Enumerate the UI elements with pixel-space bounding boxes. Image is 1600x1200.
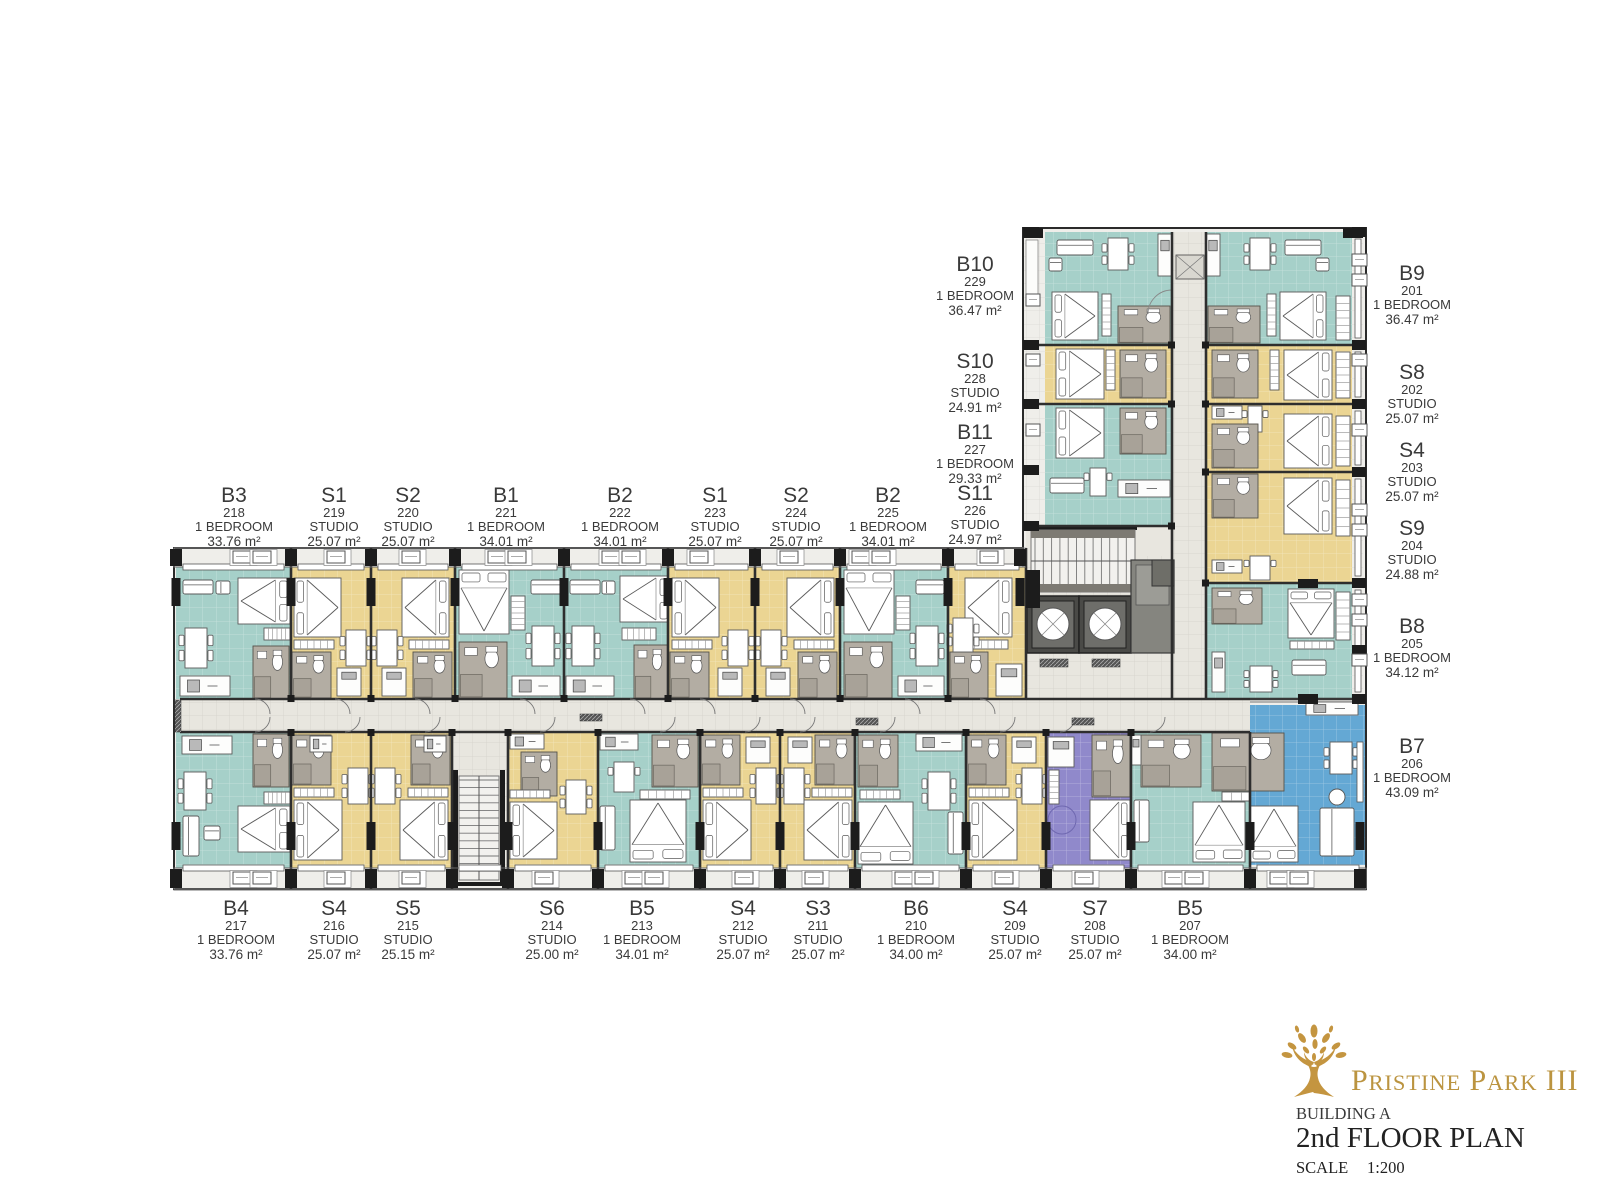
svg-text:B6: B6: [903, 897, 929, 920]
svg-text:STUDIO: STUDIO: [690, 519, 739, 534]
svg-text:SCALE: SCALE: [1296, 1158, 1348, 1177]
svg-text:34.12 m²: 34.12 m²: [1385, 665, 1439, 680]
svg-text:S5: S5: [395, 897, 421, 920]
svg-text:221: 221: [495, 505, 517, 520]
svg-text:B3: B3: [221, 484, 247, 507]
svg-text:223: 223: [704, 505, 726, 520]
svg-text:S4: S4: [321, 897, 347, 920]
svg-text:STUDIO: STUDIO: [527, 932, 576, 947]
svg-text:1 BEDROOM: 1 BEDROOM: [936, 456, 1014, 471]
svg-text:215: 215: [397, 918, 419, 933]
svg-text:STUDIO: STUDIO: [771, 519, 820, 534]
svg-text:S9: S9: [1399, 517, 1425, 540]
svg-text:25.07 m²: 25.07 m²: [381, 534, 435, 549]
svg-text:24.88 m²: 24.88 m²: [1385, 567, 1439, 582]
svg-text:STUDIO: STUDIO: [1387, 474, 1436, 489]
svg-text:S1: S1: [321, 484, 347, 507]
svg-text:STUDIO: STUDIO: [309, 932, 358, 947]
svg-text:36.47 m²: 36.47 m²: [948, 303, 1002, 318]
svg-text:229: 229: [964, 274, 986, 289]
svg-text:203: 203: [1401, 460, 1423, 475]
svg-text:B9: B9: [1399, 262, 1425, 285]
svg-text:24.97 m²: 24.97 m²: [948, 532, 1002, 547]
svg-text:1 BEDROOM: 1 BEDROOM: [1151, 932, 1229, 947]
svg-text:202: 202: [1401, 382, 1423, 397]
svg-text:33.76 m²: 33.76 m²: [209, 947, 263, 962]
svg-text:STUDIO: STUDIO: [718, 932, 767, 947]
svg-text:25.07 m²: 25.07 m²: [688, 534, 742, 549]
svg-text:25.07 m²: 25.07 m²: [1068, 947, 1122, 962]
svg-text:B4: B4: [223, 897, 249, 920]
svg-text:209: 209: [1004, 918, 1026, 933]
svg-text:212: 212: [732, 918, 754, 933]
svg-text:25.07 m²: 25.07 m²: [988, 947, 1042, 962]
svg-text:25.00 m²: 25.00 m²: [525, 947, 579, 962]
svg-text:S10: S10: [956, 350, 993, 373]
svg-text:STUDIO: STUDIO: [950, 517, 999, 532]
svg-text:25.07 m²: 25.07 m²: [307, 947, 361, 962]
svg-text:BUILDING A: BUILDING A: [1296, 1104, 1391, 1123]
svg-text:25.07 m²: 25.07 m²: [716, 947, 770, 962]
svg-text:34.00 m²: 34.00 m²: [1163, 947, 1217, 962]
svg-text:B5: B5: [629, 897, 655, 920]
svg-text:222: 222: [609, 505, 631, 520]
svg-text:S2: S2: [395, 484, 421, 507]
svg-text:210: 210: [905, 918, 927, 933]
svg-text:25.07 m²: 25.07 m²: [769, 534, 823, 549]
svg-text:207: 207: [1179, 918, 1201, 933]
svg-text:25.07 m²: 25.07 m²: [1385, 411, 1439, 426]
svg-text:1 BEDROOM: 1 BEDROOM: [467, 519, 545, 534]
svg-text:36.47 m²: 36.47 m²: [1385, 312, 1439, 327]
svg-text:1 BEDROOM: 1 BEDROOM: [581, 519, 659, 534]
svg-text:213: 213: [631, 918, 653, 933]
svg-text:224: 224: [785, 505, 807, 520]
svg-text:S4: S4: [1002, 897, 1028, 920]
svg-text:1 BEDROOM: 1 BEDROOM: [1373, 650, 1451, 665]
svg-text:226: 226: [964, 503, 986, 518]
svg-text:1 BEDROOM: 1 BEDROOM: [195, 519, 273, 534]
svg-text:B7: B7: [1399, 735, 1425, 758]
svg-text:S7: S7: [1082, 897, 1108, 920]
svg-text:STUDIO: STUDIO: [1070, 932, 1119, 947]
svg-text:S1: S1: [702, 484, 728, 507]
svg-text:211: 211: [808, 918, 829, 933]
svg-text:228: 228: [964, 371, 986, 386]
svg-text:S11: S11: [957, 482, 993, 505]
svg-text:1 BEDROOM: 1 BEDROOM: [1373, 297, 1451, 312]
svg-text:218: 218: [223, 505, 245, 520]
svg-text:25.07 m²: 25.07 m²: [1385, 489, 1439, 504]
svg-text:34.00 m²: 34.00 m²: [889, 947, 943, 962]
svg-text:1 BEDROOM: 1 BEDROOM: [1373, 770, 1451, 785]
svg-text:S6: S6: [539, 897, 565, 920]
svg-text:33.76 m²: 33.76 m²: [207, 534, 261, 549]
svg-text:B5: B5: [1177, 897, 1203, 920]
svg-text:S3: S3: [805, 897, 831, 920]
svg-text:205: 205: [1401, 636, 1423, 651]
svg-text:1 BEDROOM: 1 BEDROOM: [936, 288, 1014, 303]
svg-text:S2: S2: [783, 484, 809, 507]
svg-text:201: 201: [1401, 283, 1423, 298]
svg-text:S4: S4: [1399, 439, 1425, 462]
svg-text:STUDIO: STUDIO: [1387, 552, 1436, 567]
svg-text:STUDIO: STUDIO: [793, 932, 842, 947]
svg-text:25.07 m²: 25.07 m²: [791, 947, 845, 962]
svg-text:STUDIO: STUDIO: [1387, 396, 1436, 411]
svg-text:1 BEDROOM: 1 BEDROOM: [849, 519, 927, 534]
svg-text:B2: B2: [875, 484, 901, 507]
svg-text:STUDIO: STUDIO: [383, 519, 432, 534]
svg-text:1 BEDROOM: 1 BEDROOM: [603, 932, 681, 947]
svg-text:34.01 m²: 34.01 m²: [615, 947, 669, 962]
svg-text:B10: B10: [956, 253, 993, 276]
svg-text:216: 216: [323, 918, 345, 933]
svg-text:B8: B8: [1399, 615, 1425, 638]
svg-text:STUDIO: STUDIO: [383, 932, 432, 947]
svg-text:24.91 m²: 24.91 m²: [948, 400, 1002, 415]
svg-text:25.07 m²: 25.07 m²: [307, 534, 361, 549]
svg-text:STUDIO: STUDIO: [309, 519, 358, 534]
svg-text:25.15 m²: 25.15 m²: [381, 947, 435, 962]
svg-text:2nd FLOOR PLAN: 2nd FLOOR PLAN: [1296, 1122, 1525, 1154]
svg-text:S4: S4: [730, 897, 756, 920]
svg-text:B1: B1: [493, 484, 519, 507]
svg-text:225: 225: [877, 505, 899, 520]
svg-text:206: 206: [1401, 756, 1423, 771]
svg-text:STUDIO: STUDIO: [990, 932, 1039, 947]
svg-text:S8: S8: [1399, 361, 1425, 384]
svg-text:204: 204: [1401, 538, 1423, 553]
svg-text:208: 208: [1084, 918, 1106, 933]
svg-text:227: 227: [964, 442, 986, 457]
svg-text:220: 220: [397, 505, 419, 520]
svg-text:219: 219: [323, 505, 345, 520]
svg-text:214: 214: [541, 918, 563, 933]
svg-text:34.01 m²: 34.01 m²: [861, 534, 915, 549]
svg-text:1 BEDROOM: 1 BEDROOM: [877, 932, 955, 947]
svg-text:217: 217: [225, 918, 247, 933]
svg-text:STUDIO: STUDIO: [950, 385, 999, 400]
svg-text:B11: B11: [957, 421, 993, 444]
svg-text:34.01 m²: 34.01 m²: [479, 534, 533, 549]
svg-text:43.09 m²: 43.09 m²: [1385, 785, 1439, 800]
svg-text:1:200: 1:200: [1367, 1158, 1405, 1177]
svg-text:34.01 m²: 34.01 m²: [593, 534, 647, 549]
svg-text:1 BEDROOM: 1 BEDROOM: [197, 932, 275, 947]
svg-text:B2: B2: [607, 484, 633, 507]
